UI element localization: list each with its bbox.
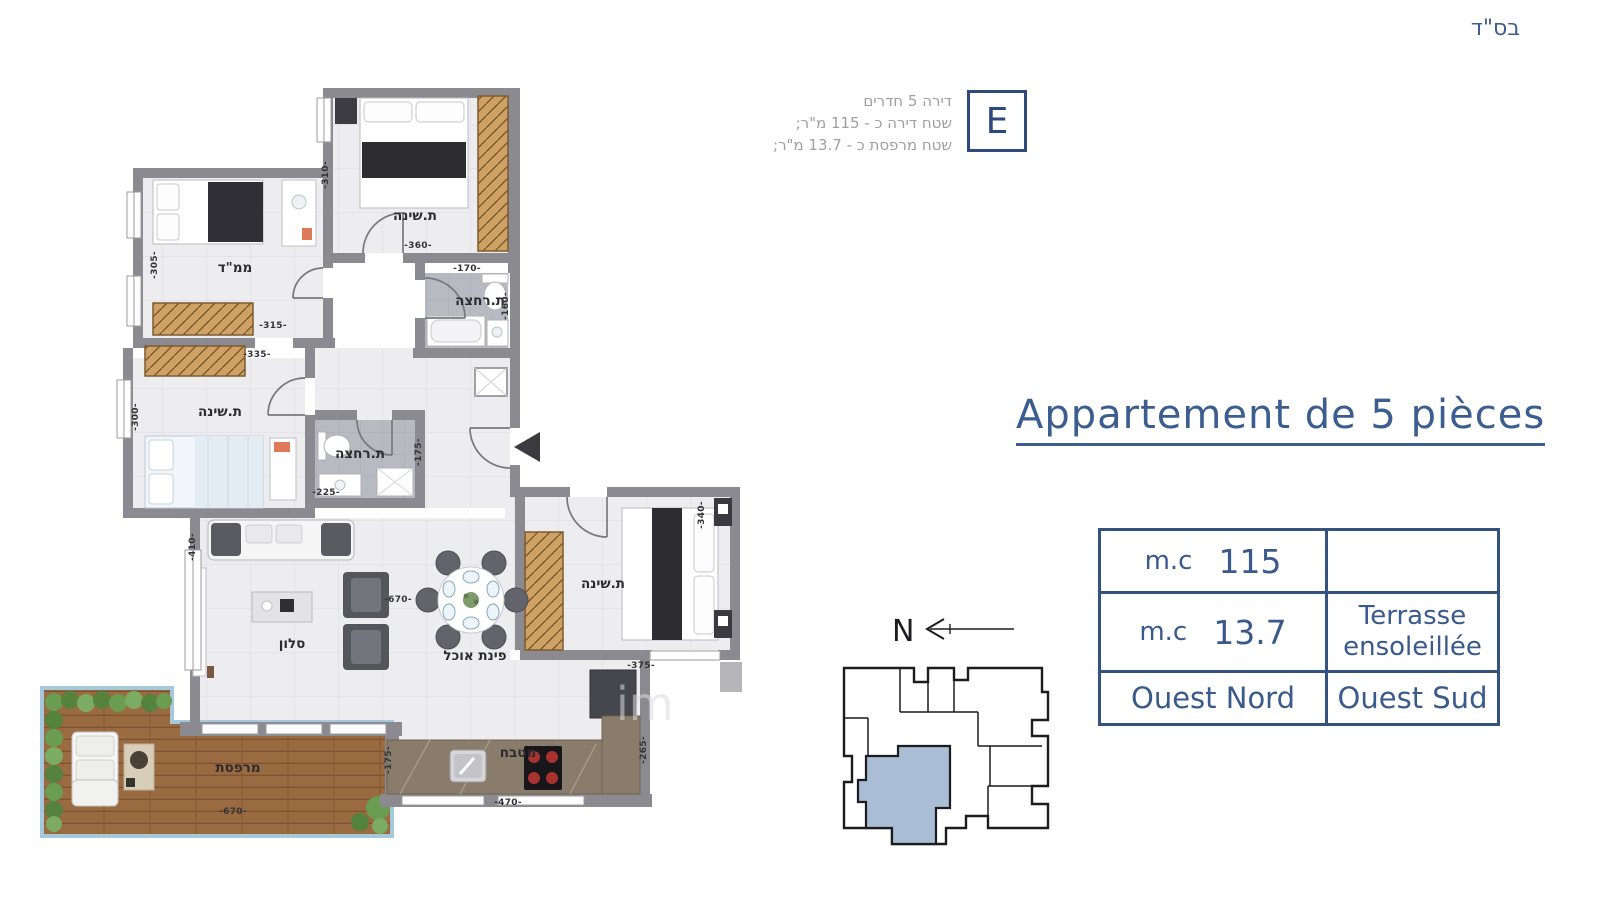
dim-315: -315- [259, 321, 287, 331]
spec-cell-empty [1328, 531, 1497, 591]
spec-cell-area: m.c 115 [1101, 531, 1328, 591]
keyplan-minimap [838, 660, 1054, 858]
north-compass: N [884, 608, 1024, 652]
room-label-bedroom-top: ת.שינה [393, 208, 437, 224]
orientation-west-south: Ouest Sud [1328, 673, 1497, 723]
room-label-terrace: מרפסת [215, 760, 260, 776]
dim-160: -160- [501, 292, 511, 320]
bedroom-left-furniture [145, 436, 296, 508]
room-label-bedroom-right: ת.שינה [581, 576, 625, 592]
dim-300: -300- [131, 403, 141, 431]
spec-row-terrace: m.c 13.7 Terrasse ensoleillée [1101, 594, 1497, 673]
spec-row-orientation: Ouest Nord Ouest Sud [1101, 673, 1497, 723]
dim-310: -310- [321, 161, 331, 189]
mamad-furniture [153, 180, 316, 246]
mc-label: m.c [1139, 617, 1187, 647]
north-label: N [892, 614, 914, 649]
room-label-bathroom-mid: ת.רחצה [335, 446, 385, 462]
terrasse-line-1: Terrasse [1343, 601, 1482, 632]
room-label-bedroom-left: ת.שינה [198, 404, 242, 420]
terrasse-line-2: ensoleillée [1343, 632, 1482, 663]
closet-bedroom-right [525, 532, 563, 650]
dim-670-living: -670- [384, 595, 412, 605]
dim-335: -335- [243, 350, 271, 360]
unit-letter: E [986, 101, 1009, 142]
dim-175-terrace: -175- [384, 746, 394, 774]
spec-cell-terrace-label: Terrasse ensoleillée [1328, 594, 1497, 670]
dim-410: -410- [188, 533, 198, 561]
room-label-bathroom-top: ת.רחצה [455, 293, 505, 309]
keyplan-unit-highlight [858, 746, 950, 844]
page-title: Appartement de 5 pièces [1016, 392, 1545, 446]
entry-arrow-icon [514, 432, 540, 462]
room-label-dining: פינת אוכל [443, 648, 506, 664]
terrace-table [130, 751, 148, 769]
dim-470: -470- [494, 798, 522, 808]
room-label-salon: סלון [279, 636, 306, 652]
room-label-kitchen: מטבח [500, 745, 536, 761]
closet-bedroom-top [478, 96, 508, 251]
dim-305: -305- [150, 251, 160, 279]
mc-label: m.c [1145, 546, 1193, 576]
closet-mamad [153, 303, 253, 335]
spec-row-area: m.c 115 [1101, 531, 1497, 594]
dim-375: -375- [627, 661, 655, 671]
ac-ledge [720, 662, 742, 692]
orientation-west-north: Ouest Nord [1101, 673, 1328, 723]
dim-175-bath: -175- [414, 438, 424, 466]
closet-bedroom-left [145, 346, 245, 376]
floor-plan: im ת.שינה ממ"ד ת.רחצה ת.שינה ת.רחצה סלון… [30, 80, 750, 840]
dim-670-terrace: -670- [219, 807, 247, 817]
dim-225: -225- [312, 488, 340, 498]
terrace-area-value: 13.7 [1213, 613, 1286, 652]
area-value: 115 [1218, 542, 1281, 581]
dim-265: -265- [639, 736, 649, 764]
dim-340: -340- [697, 501, 707, 529]
shaft-box [475, 368, 507, 396]
spec-table: m.c 115 m.c 13.7 Terrasse ensoleillée Ou… [1098, 528, 1500, 726]
dim-170: -170- [453, 264, 481, 274]
bsd-text: בס"ד [1471, 16, 1520, 41]
room-label-mamad: ממ"ד [218, 260, 253, 276]
page: בס"ד דירה 5 חדרים שטח דירה כ - 115 מ"ר; … [0, 0, 1600, 900]
dim-360: -360- [404, 241, 432, 251]
unit-letter-box: E [967, 90, 1027, 152]
bedroom-right-furniture [622, 498, 732, 640]
kitchen-counter [387, 740, 602, 794]
watermark: im [616, 677, 674, 731]
spec-cell-terrace-area: m.c 13.7 [1101, 594, 1328, 670]
